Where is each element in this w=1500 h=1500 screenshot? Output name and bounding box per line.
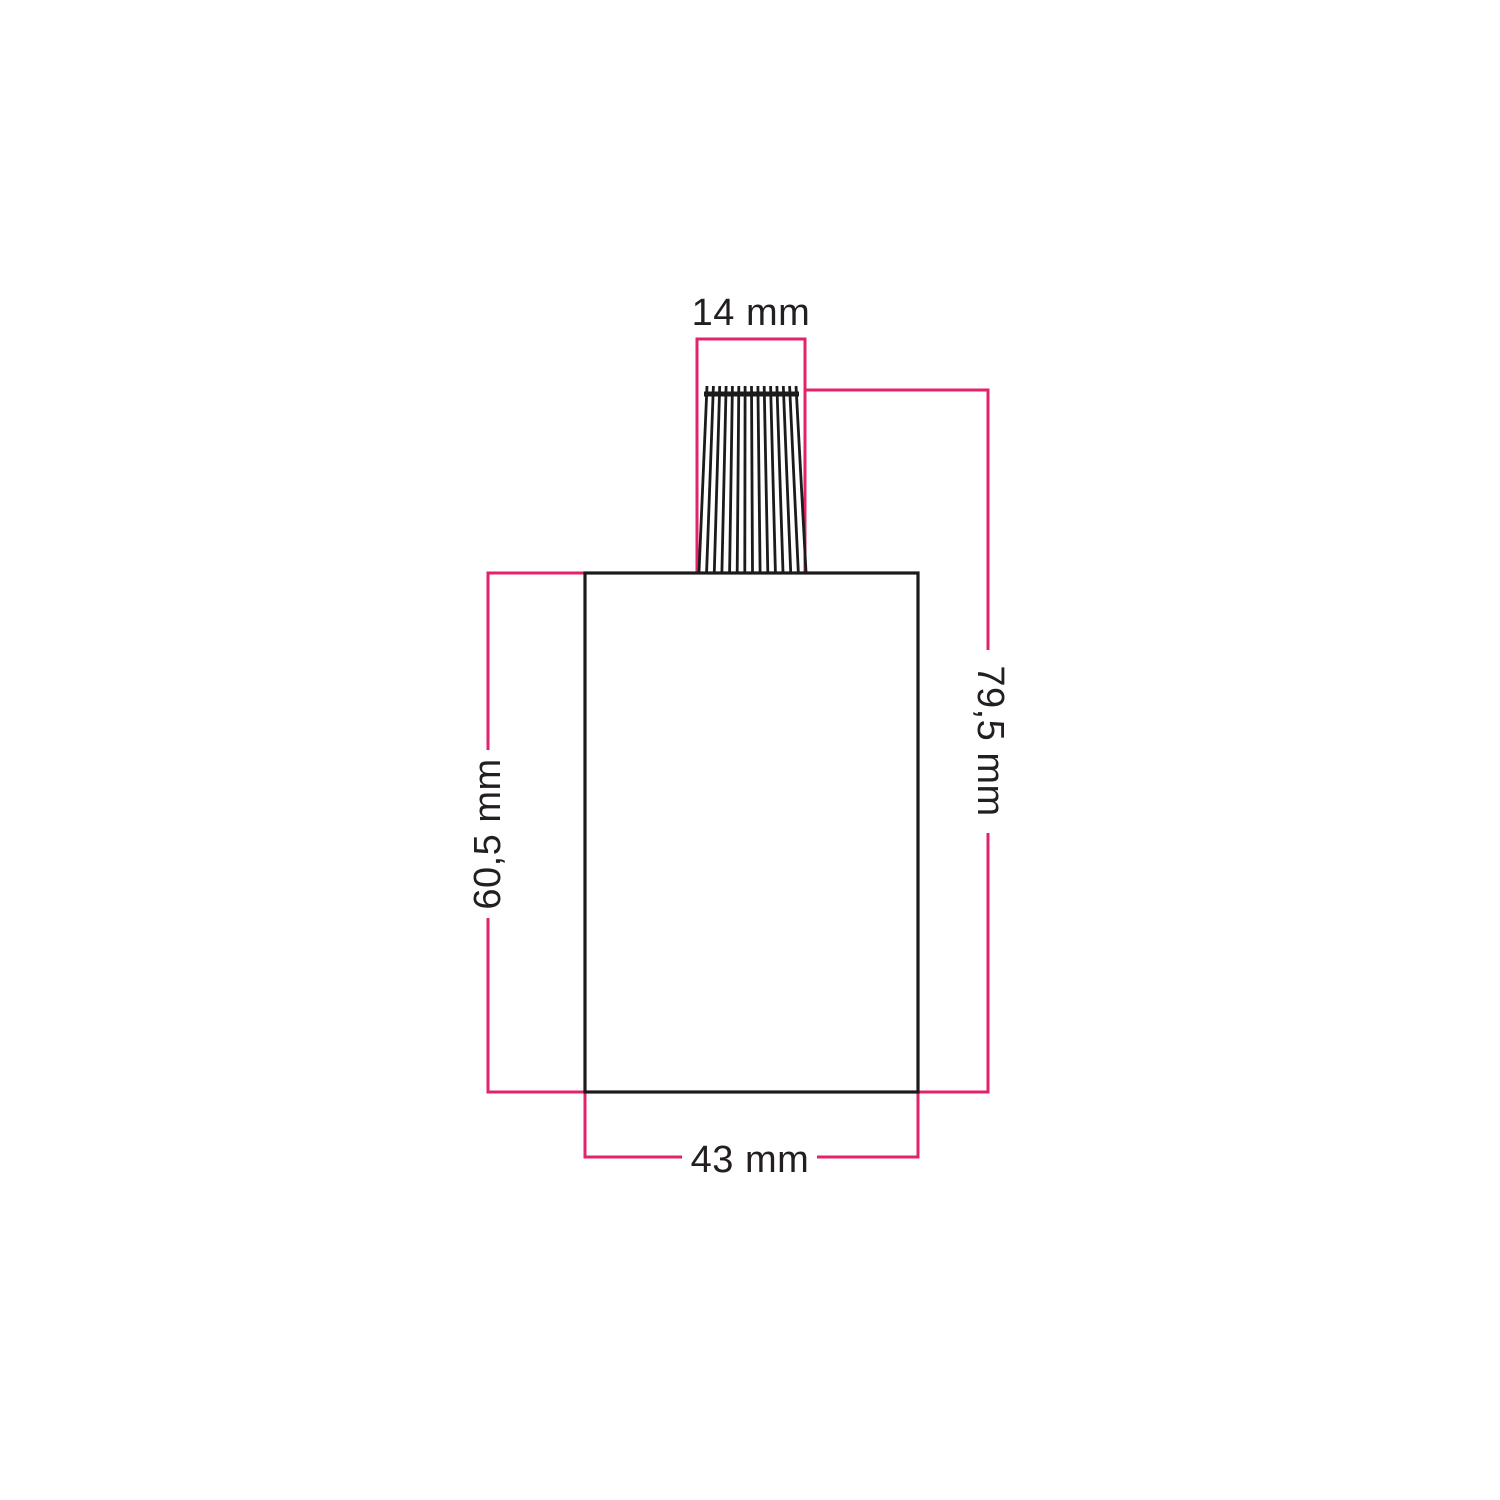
grip-rib (777, 386, 783, 572)
grip-rib (737, 386, 739, 572)
grip-rib (722, 386, 726, 572)
grip-rib (699, 386, 707, 572)
grip-rib (752, 386, 753, 572)
dim-label-body-height: 60,5 mm (467, 758, 509, 909)
drawing-canvas: 14 mm 79,5 mm 60,5 mm 43 mm (0, 0, 1500, 1500)
grip-rib (764, 386, 768, 572)
grip-rib (758, 386, 760, 572)
grip-rib (714, 386, 719, 572)
technical-drawing-lamp-holder: 14 mm 79,5 mm 60,5 mm 43 mm (0, 0, 1500, 1500)
grip-rib (707, 386, 714, 572)
grip-rib (771, 386, 776, 572)
dim-label-body-width: 43 mm (691, 1139, 810, 1181)
dim-label-total-height: 79,5 mm (969, 665, 1011, 816)
lamp-holder-body-outline (585, 573, 918, 1092)
dim-label-top-width: 14 mm (692, 292, 811, 334)
component-outline-group (585, 386, 918, 1092)
cable-grip (699, 386, 806, 572)
grip-rib (730, 386, 733, 572)
